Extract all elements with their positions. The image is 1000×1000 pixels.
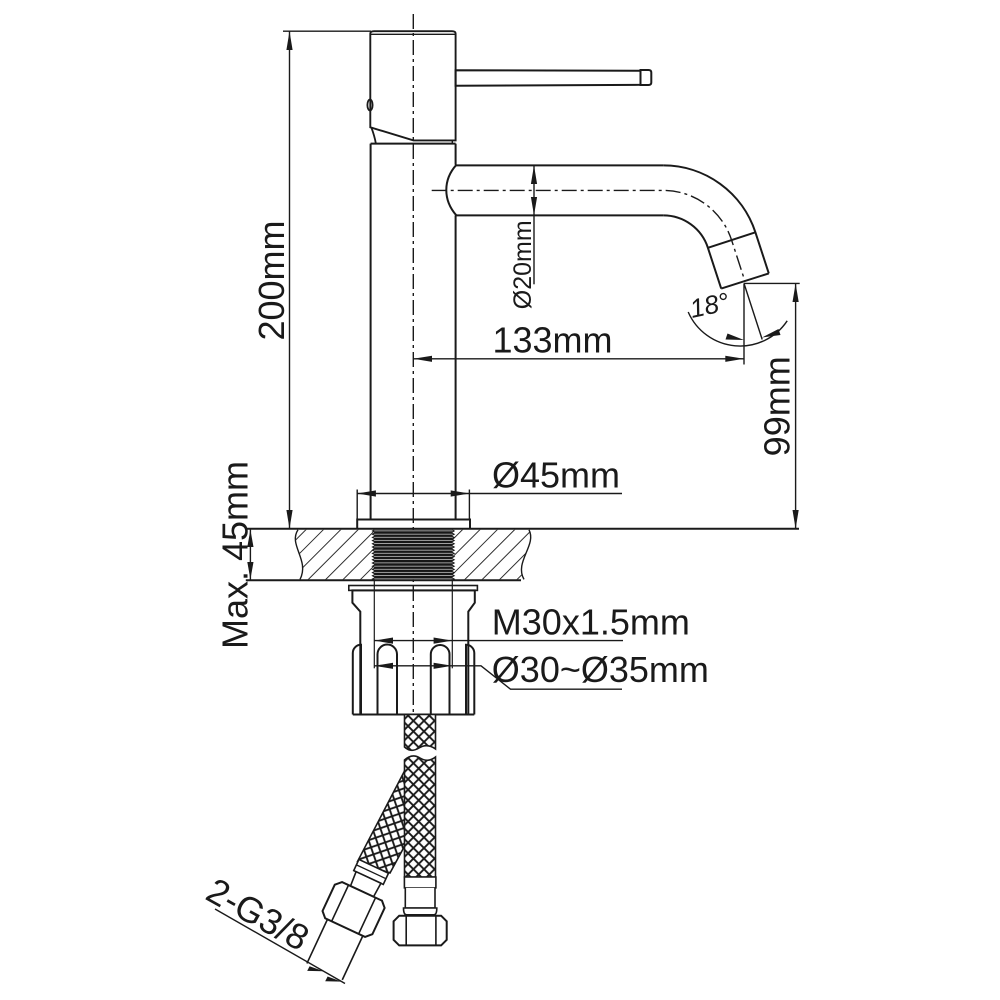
svg-text:18°: 18° bbox=[687, 286, 732, 324]
svg-text:M30x1.5mm: M30x1.5mm bbox=[492, 602, 690, 643]
svg-text:2-G3/8: 2-G3/8 bbox=[200, 870, 316, 959]
svg-text:Ø30~Ø35mm: Ø30~Ø35mm bbox=[492, 649, 709, 690]
svg-text:99mm: 99mm bbox=[757, 356, 798, 456]
svg-text:Max. 45mm: Max. 45mm bbox=[215, 461, 256, 649]
svg-text:Ø45mm: Ø45mm bbox=[492, 455, 620, 496]
svg-text:133mm: 133mm bbox=[492, 320, 612, 361]
svg-text:200mm: 200mm bbox=[251, 220, 292, 340]
svg-text:Ø20mm: Ø20mm bbox=[509, 220, 537, 309]
